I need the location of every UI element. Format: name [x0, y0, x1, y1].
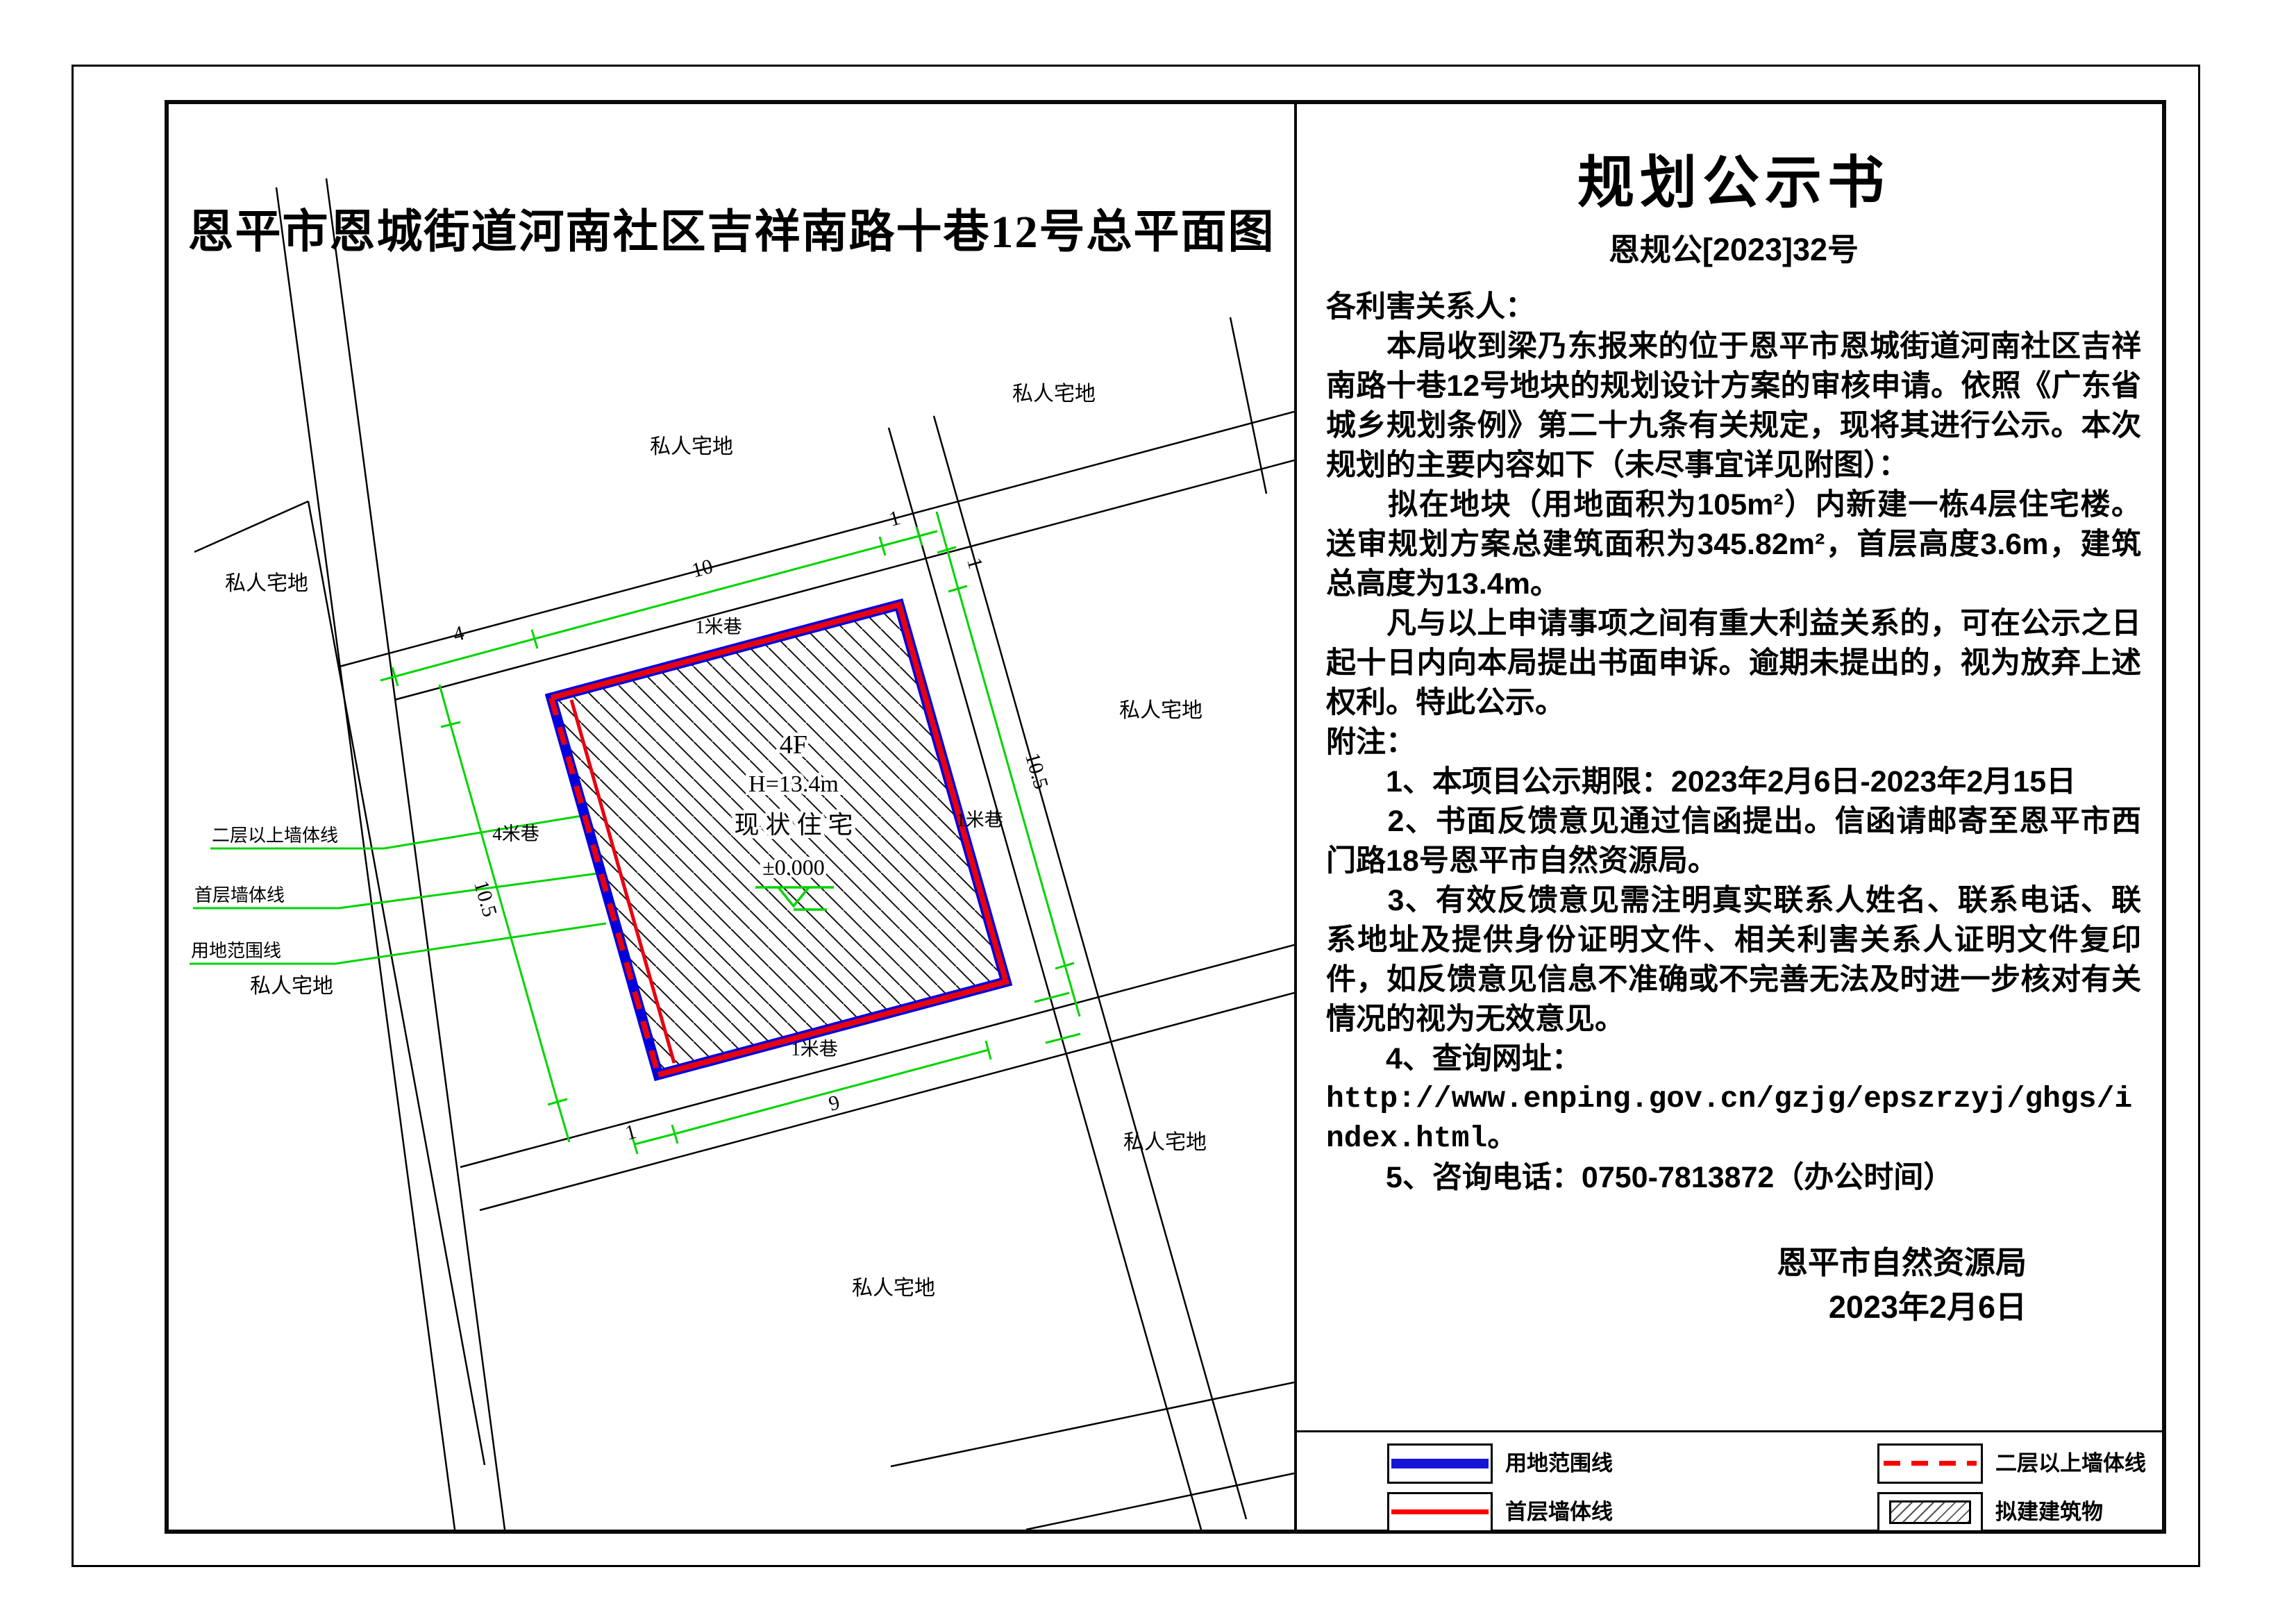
notice-title: 规划公示书 — [1326, 136, 2141, 219]
first-floor-wall-swatch — [1387, 1492, 1493, 1532]
notice-note-5: 5、咨询电话：0750-7813872（办公时间） — [1326, 1158, 2141, 1198]
red-line-icon — [1391, 1509, 1489, 1514]
signature-block: 恩平市自然资源局 2023年2月6日 — [1326, 1241, 2141, 1330]
building-height: H=13.4m — [748, 771, 839, 797]
legend-label: 拟建建筑物 — [1995, 1492, 2103, 1532]
notice-panel: 规划公示书 恩规公[2023]32号 各利害关系人： 本局收到梁乃东报来的位于恩… — [1294, 100, 2166, 1430]
lane-label-right: 1米巷 — [956, 810, 1003, 830]
lane-label-bottom: 1米巷 — [791, 1039, 838, 1060]
notice-url: http://www.enping.gov.cn/gzjg/epszrzyj/g… — [1326, 1079, 2141, 1158]
dim-9: 9 — [826, 1091, 842, 1116]
plot-boundary-line — [551, 605, 1006, 1075]
notice-doc-number: 恩规公[2023]32号 — [1326, 224, 2141, 269]
notice-note-1: 1、本项目公示期限：2023年2月6日-2023年2月15日 — [1326, 762, 2141, 802]
legend-label: 二层以上墙体线 — [1995, 1443, 2146, 1484]
legend-label: 首层墙体线 — [1505, 1492, 1613, 1532]
proposed-building-swatch — [1877, 1492, 1983, 1532]
upper-wall-swatch — [1877, 1443, 1983, 1484]
notice-paragraph: 本局收到梁乃东报来的位于恩平市恩城街道河南社区吉祥南路十巷12号地块的规划设计方… — [1326, 327, 2141, 485]
lane-label-left: 4米巷 — [492, 823, 539, 844]
building-status: 现 状 住 宅 — [734, 811, 853, 839]
building-level: ±0.000 — [762, 855, 825, 880]
dim-1: 1 — [962, 555, 987, 572]
dim-10: 10 — [689, 555, 716, 583]
plot-boundary-swatch — [1387, 1443, 1493, 1484]
notice-body: 各利害关系人： 本局收到梁乃东报来的位于恩平市恩城街道河南社区吉祥南路十巷12号… — [1326, 287, 2141, 1198]
leader-first-wall-label: 首层墙体线 — [194, 885, 285, 905]
signature-date: 2023年2月6日 — [1326, 1285, 2027, 1330]
parcel-label: 私人宅地 — [1119, 699, 1203, 722]
notice-paragraph: 拟在地块（用地面积为105m²）内新建一栋4层住宅楼。送审规划方案总建筑面积为3… — [1326, 485, 2141, 604]
parcel-label: 私人宅地 — [852, 1277, 935, 1300]
parcel-label: 私人宅地 — [1012, 383, 1096, 405]
dim-10-5-right: 10.5 — [1021, 751, 1053, 792]
leader-boundary-label: 用地范围线 — [191, 941, 281, 961]
dim-1: 1 — [623, 1120, 639, 1145]
notice-paragraph: 凡与以上申请事项之间有重大利益关系的，可在公示之日起十日内向本局提出书面申诉。逾… — [1326, 604, 2141, 723]
notice-note-4: 4、查询网址： — [1326, 1039, 2141, 1079]
legend: 用地范围线 首层墙体线 二层以上墙体线 拟建建筑物 — [1294, 1430, 2166, 1534]
blue-line-icon — [1391, 1459, 1489, 1468]
notice-salutation: 各利害关系人： — [1326, 287, 2141, 327]
notice-note-2: 2、书面反馈意见通过信函提出。信函请邮寄至恩平市西门路18号恩平市自然资源局。 — [1326, 802, 2141, 881]
lane-label-top: 1米巷 — [695, 617, 742, 637]
red-dashed-line-icon — [1884, 1461, 1977, 1466]
building-floors: 4F — [780, 730, 807, 760]
legend-label: 用地范围线 — [1505, 1443, 1613, 1484]
site-plan-panel: 恩平市恩城街道河南社区吉祥南路十巷12号总平面图 — [169, 104, 1294, 1530]
planning-notice-page: 恩平市恩城街道河南社区吉祥南路十巷12号总平面图 — [0, 0, 2296, 1624]
site-plan-drawing: 私人宅地 私人宅地 私人宅地 私人宅地 私人宅地 私人宅地 私人宅地 1米巷 1… — [169, 104, 1294, 1530]
notice-note-3: 3、有效反馈意见需注明真实联系人姓名、联系电话、联系地址及提供身份证明文件、相关… — [1326, 881, 2141, 1039]
parcel-label: 私人宅地 — [225, 572, 308, 595]
building-plot — [551, 605, 1006, 1075]
dim-1: 1 — [887, 506, 903, 531]
parcel-label: 私人宅地 — [1123, 1131, 1207, 1154]
leader-upper-wall-label: 二层以上墙体线 — [212, 826, 338, 846]
hatch-icon — [1889, 1500, 1971, 1524]
parcel-label: 私人宅地 — [250, 975, 333, 998]
parcel-label: 私人宅地 — [650, 435, 733, 458]
notice-notes-heading: 附注： — [1326, 723, 2141, 762]
signature-agency: 恩平市自然资源局 — [1326, 1241, 2027, 1285]
